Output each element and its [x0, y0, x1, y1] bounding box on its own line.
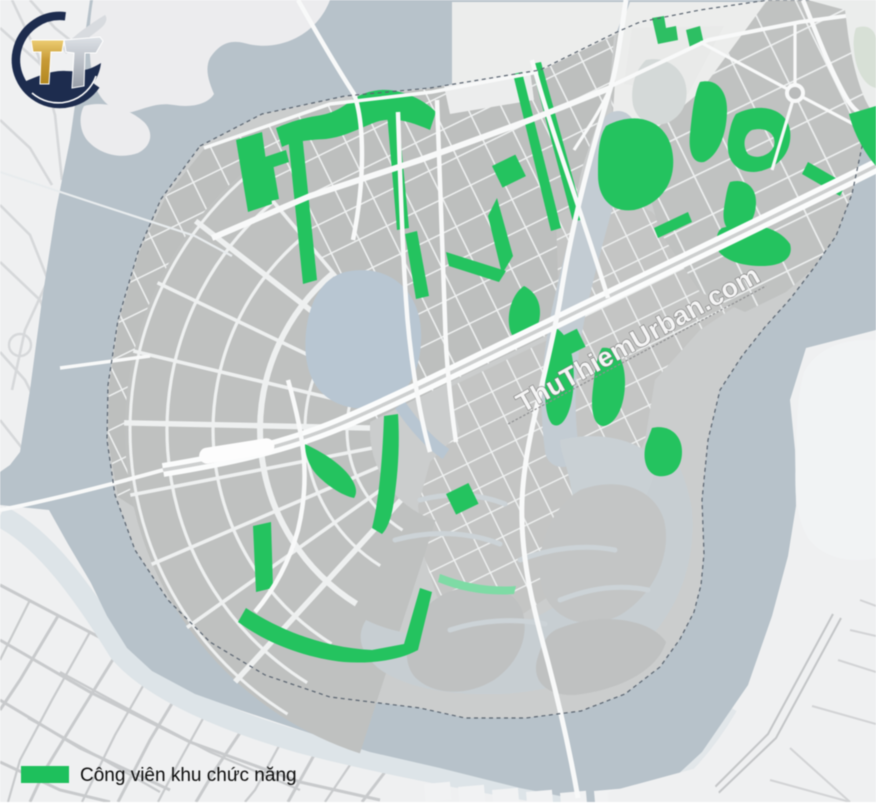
- svg-text:Công viên khu chức năng: Công viên khu chức năng: [80, 765, 297, 786]
